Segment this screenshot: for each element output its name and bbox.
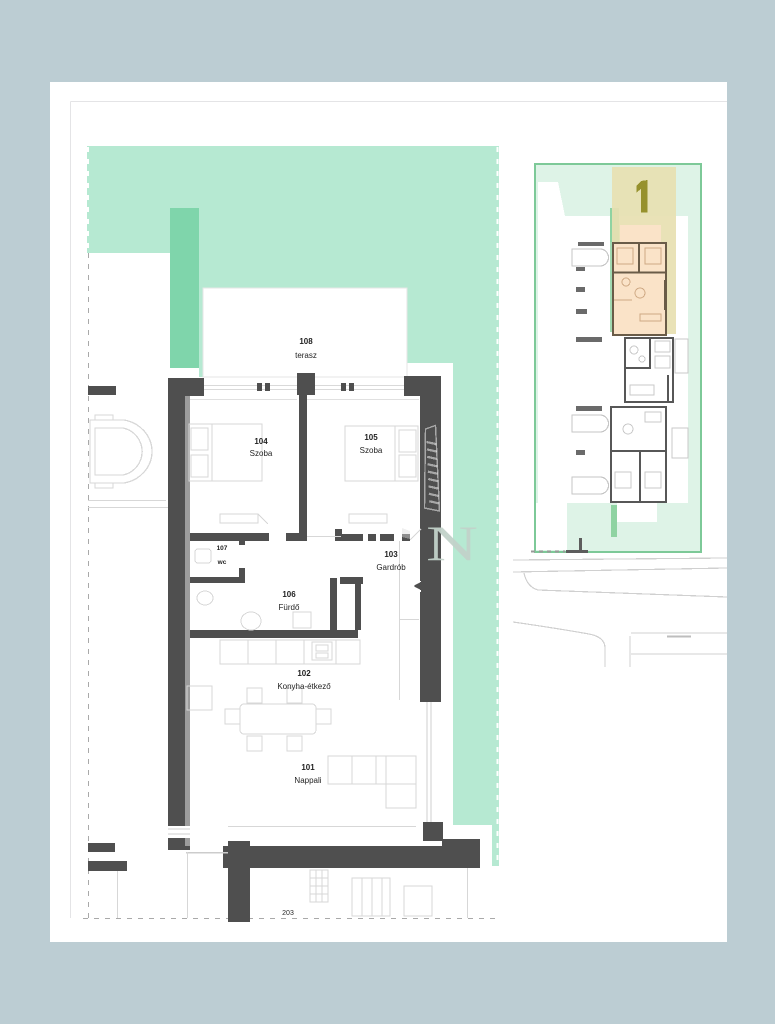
svg-text:Gardrób: Gardrób xyxy=(376,563,406,572)
svg-text:Szoba: Szoba xyxy=(250,449,273,458)
svg-text:101: 101 xyxy=(301,763,315,772)
svg-text:105: 105 xyxy=(364,433,378,442)
svg-text:103: 103 xyxy=(384,550,398,559)
svg-text:108: 108 xyxy=(299,337,313,346)
svg-text:wc: wc xyxy=(217,559,227,566)
svg-text:107: 107 xyxy=(217,545,228,552)
svg-text:102: 102 xyxy=(297,669,311,678)
svg-text:203: 203 xyxy=(282,910,294,917)
svg-text:N: N xyxy=(426,515,478,571)
svg-text:terasz: terasz xyxy=(295,351,317,360)
svg-text:Szoba: Szoba xyxy=(360,446,383,455)
svg-text:Nappali: Nappali xyxy=(294,776,321,785)
svg-text:Fürdő: Fürdő xyxy=(279,603,300,612)
svg-text:Konyha-étkező: Konyha-étkező xyxy=(277,682,331,691)
svg-text:104: 104 xyxy=(254,437,268,446)
svg-text:106: 106 xyxy=(282,590,296,599)
